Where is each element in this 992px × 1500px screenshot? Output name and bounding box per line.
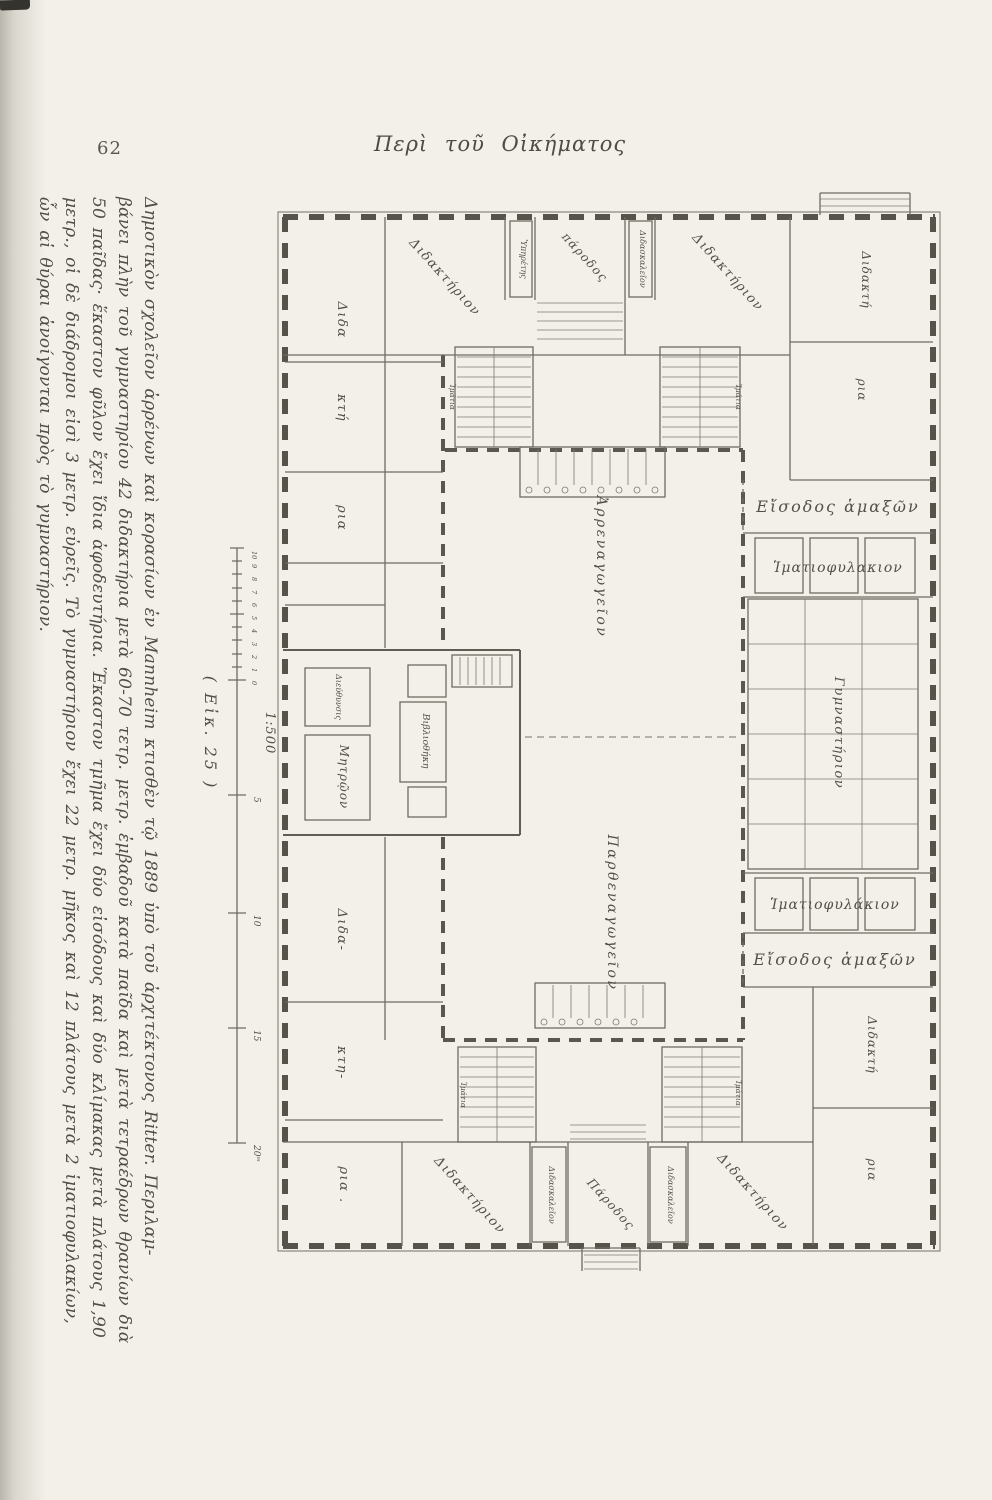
scale-minor-tick: 3: [250, 642, 258, 646]
running-header: Περὶ τοῦ Οἰκήματος: [374, 132, 626, 156]
scale-major-tick: 10: [251, 915, 261, 927]
scale-major-tick: 5: [251, 797, 261, 803]
room-label-passage: πάροδος: [558, 229, 611, 285]
scale-minor-tick: 8: [250, 577, 258, 581]
caption-line: μετρ., οἱ δὲ διάδρομοι εἰσὶ 3 μετρ. εὐρε…: [58, 197, 84, 1275]
room-label-direction: Διεύθυνσις: [334, 673, 343, 720]
floor-plan: 10 9 8 7 6 5 4 3 2 1 0 5 10 15 20ᵐ 1:500…: [180, 185, 950, 1285]
room-label-classroom: ρια: [855, 378, 869, 402]
label-carriage-entrance: Εἴσοδος ἁμαξῶν: [755, 497, 919, 516]
room-label-gymnasium: Γυμναστήριον: [831, 676, 846, 789]
figure-caption: Δημοτικὸν σχολεῖον ἀρρένων καὶ κορασίων …: [32, 197, 163, 1275]
scale-minor-tick: 9: [250, 564, 258, 568]
room-label-cloakroom: Ἱματιοφυλάκιον: [770, 896, 900, 913]
caption-line: ὧν αἱ θύραι ἀνοίγονται πρὸς τὸ γυμναστήρ…: [32, 197, 58, 1275]
room-label-classroom: Διδακτήριον: [688, 230, 766, 315]
room-label-teachers-room: Διδασκαλεῖον: [666, 1165, 675, 1224]
left-wing: [285, 355, 443, 1120]
figure-number-label: ( Εἰκ. 25 ): [201, 676, 220, 791]
scale-minor-tick: 2: [250, 654, 258, 659]
scale-minor-tick: 4: [250, 628, 258, 633]
scale-major-tick: 15: [251, 1030, 261, 1042]
scale-minor-tick: 1: [250, 668, 258, 672]
room-label-cloakroom: Ἱματιοφυλακιον: [773, 559, 903, 576]
scale-bar: 10 9 8 7 6 5 4 3 2 1 0 5 10 15 20ᵐ 1:500: [228, 548, 277, 1162]
label-carriage-entrance: Εἴσοδος ἁμαξῶν: [752, 950, 916, 969]
scale-minor-tick: 5: [250, 616, 258, 620]
room-label-classroom: Διδακτήριον: [430, 1153, 508, 1238]
room-label-classrooms: ρια .: [336, 1165, 351, 1203]
room-label-library: Βιβλιοθήκη: [420, 713, 431, 769]
room-label-classrooms: κτή: [334, 393, 349, 422]
book-page: { "page": { "number": "62", "header": "Π…: [0, 0, 992, 1500]
admin-band: [283, 650, 520, 835]
room-label-cloaks: Ἱμάτια: [459, 1082, 468, 1108]
top-wing: [283, 193, 933, 480]
scan-corner-mark: [0, 0, 30, 11]
room-label-cloaks: Ἱμάτια: [734, 1080, 743, 1106]
scale-ratio: 1:500: [262, 712, 277, 754]
room-label-classrooms: κτη-: [334, 1045, 349, 1080]
scale-minor-tick: 7: [250, 590, 258, 595]
caption-line: βάνει πλὴν τοῦ γυμναστηρίου 42 διδακτήρι…: [111, 197, 137, 1275]
room-label-servant: Ὑπηρέτης: [519, 239, 528, 279]
page-number: 62: [97, 138, 122, 159]
courtyard-label-boys-section: Ἀρρεναγωγεῖον: [593, 494, 610, 639]
room-label-cloaks: Ἱμάτια: [448, 384, 457, 410]
room-label-classrooms: Διδα-: [334, 908, 349, 952]
scale-major-tick: 20ᵐ: [251, 1144, 261, 1162]
room-label-classroom: ρια: [865, 1158, 879, 1182]
courtyard-walls: [443, 355, 743, 1040]
room-label-classroom: Διδακτήριον: [405, 235, 483, 320]
room-label-classrooms: ρια: [334, 504, 349, 531]
courtyard-label-girls-section: Παρθεναγωγεῖον: [604, 834, 620, 992]
room-label-classroom: Διδακτή: [865, 1015, 879, 1073]
caption-line: Δημοτικὸν σχολεῖον ἀρρένων καὶ κορασίων …: [137, 197, 163, 1275]
room-label-cloaks: Ἱμάτια: [734, 384, 743, 410]
room-label-passage: Πάροδος: [584, 1175, 638, 1233]
room-label-classroom: Διδακτή: [859, 250, 873, 308]
room-label-teachers-room: Διδασκαλεῖον: [638, 229, 647, 288]
room-label-classrooms: Διδα: [334, 300, 349, 338]
scale-minor-tick: 0: [250, 681, 258, 685]
right-wing: [743, 480, 933, 1245]
room-label-registry: Μητρῷον: [337, 744, 351, 809]
staircase: [455, 347, 740, 447]
caption-line: 50 παῖδας· ἕκαστον φῦλον ἔχει ἴδια ἀφοδε…: [84, 197, 110, 1275]
scale-minor-tick: 10: [250, 551, 258, 559]
room-label-classroom: Διδακτήριον: [713, 1150, 791, 1235]
room-label-teachers-room: Διδασκαλεῖον: [547, 1165, 556, 1224]
scale-minor-tick: 6: [250, 603, 258, 607]
